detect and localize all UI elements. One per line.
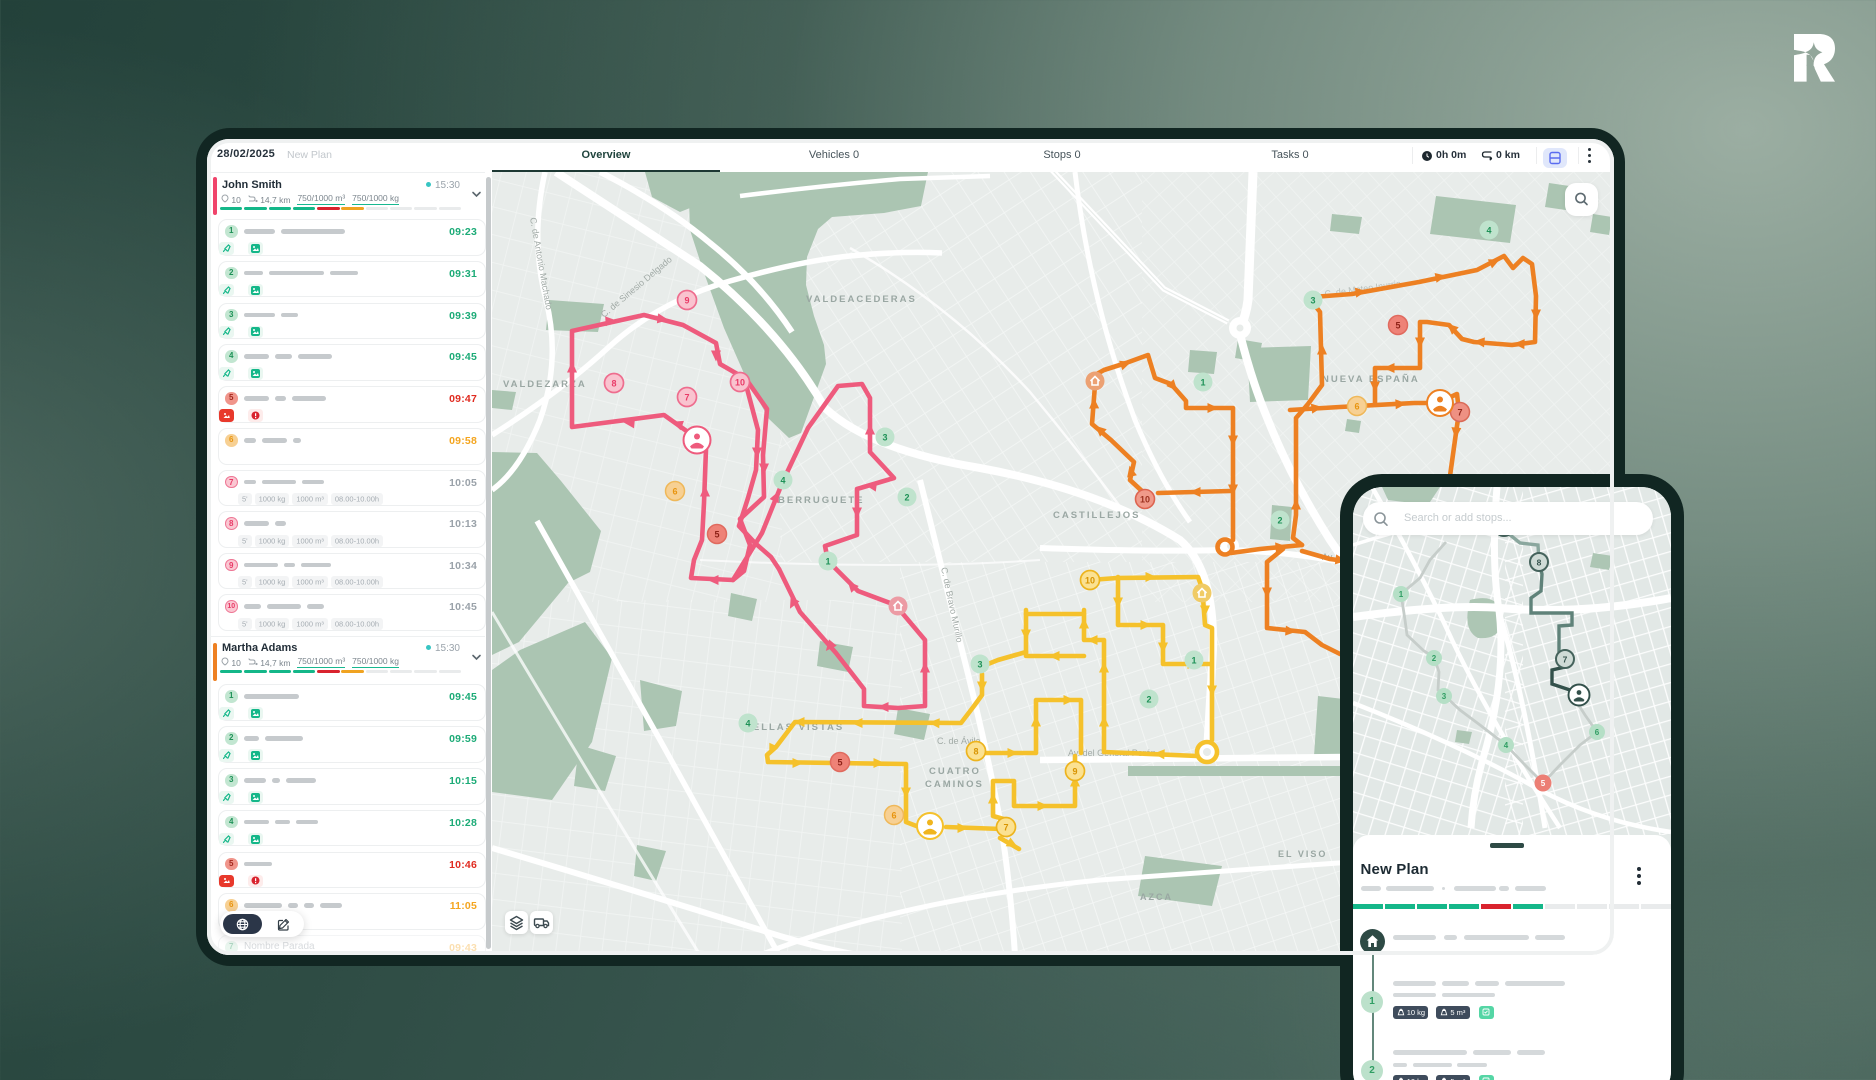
svg-text:7: 7 — [684, 393, 689, 403]
svg-text:10: 10 — [1140, 495, 1150, 505]
svg-text:6: 6 — [672, 487, 677, 497]
svg-text:5: 5 — [1541, 779, 1546, 788]
svg-text:9: 9 — [684, 296, 689, 306]
svg-text:3: 3 — [1442, 692, 1447, 701]
svg-text:3: 3 — [882, 433, 887, 443]
svg-text:2: 2 — [1432, 654, 1437, 663]
svg-text:CUATRO: CUATRO — [929, 766, 981, 777]
svg-text:1: 1 — [1399, 590, 1404, 599]
svg-text:8: 8 — [973, 747, 978, 757]
svg-text:1: 1 — [825, 557, 830, 567]
svg-text:EL VISO: EL VISO — [1278, 849, 1327, 859]
svg-text:BERRUGUETE: BERRUGUETE — [778, 495, 865, 506]
svg-text:4: 4 — [1504, 741, 1509, 750]
svg-text:10: 10 — [735, 378, 745, 388]
svg-text:3: 3 — [1310, 296, 1315, 306]
svg-text:7: 7 — [1563, 655, 1568, 665]
svg-text:10: 10 — [1085, 576, 1095, 586]
svg-text:7: 7 — [1457, 408, 1462, 418]
svg-text:VALDEACEDERAS: VALDEACEDERAS — [806, 294, 917, 305]
svg-text:7: 7 — [1003, 823, 1008, 833]
svg-text:8: 8 — [1537, 558, 1542, 568]
svg-text:CASTILLEJOS: CASTILLEJOS — [1053, 510, 1140, 521]
svg-text:2: 2 — [904, 493, 909, 503]
svg-text:6: 6 — [891, 811, 896, 821]
svg-text:5: 5 — [714, 530, 719, 540]
svg-text:1: 1 — [1200, 378, 1205, 388]
svg-text:9: 9 — [1072, 767, 1077, 777]
svg-text:6: 6 — [1595, 728, 1600, 737]
svg-text:4: 4 — [780, 476, 785, 486]
svg-text:4: 4 — [1486, 226, 1491, 236]
svg-text:5: 5 — [1395, 321, 1400, 331]
svg-text:3: 3 — [977, 660, 982, 670]
svg-text:6: 6 — [1354, 402, 1359, 412]
svg-text:8: 8 — [611, 379, 616, 389]
svg-text:AZCA: AZCA — [1140, 892, 1173, 902]
svg-text:4: 4 — [745, 719, 750, 729]
svg-text:2: 2 — [1277, 516, 1282, 526]
svg-text:2: 2 — [1146, 695, 1151, 705]
svg-text:5: 5 — [837, 758, 842, 768]
svg-text:CAMINOS: CAMINOS — [925, 779, 984, 790]
svg-text:1: 1 — [1191, 656, 1196, 666]
